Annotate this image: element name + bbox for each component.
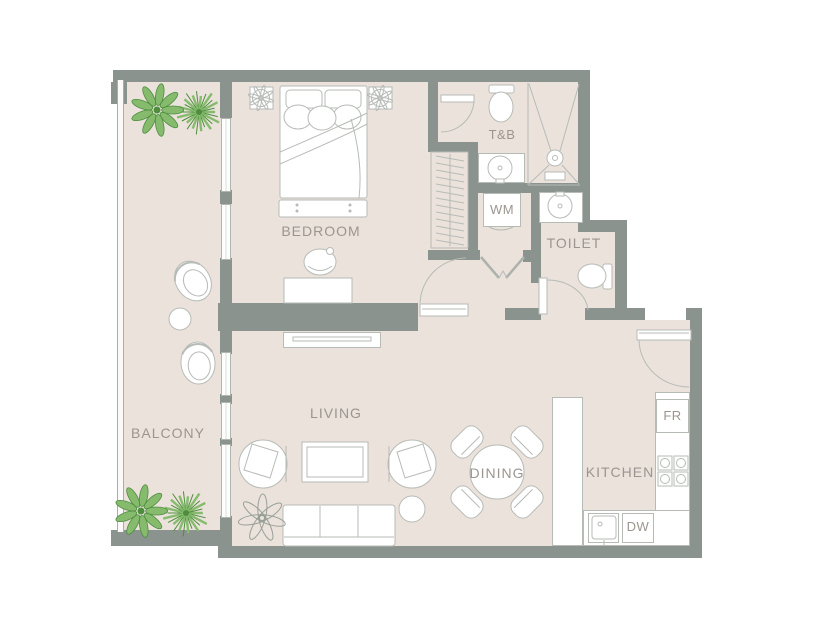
living-plant [238,494,287,542]
washing-machine-detail [489,227,513,230]
floor-plan: BALCONY BEDROOM LIVING DINING KITCHEN T&… [0,0,814,640]
shower [528,83,580,185]
kitchen-sink-detail [592,516,616,546]
palm-plant-top [177,91,219,134]
closet-bifold-right [506,257,524,278]
closet-bifold-left [481,257,499,278]
coffee-table [302,442,368,482]
balcony-lounge-chair-2 [179,341,217,386]
armchair-right [388,440,436,488]
leafy-plant-top [131,83,184,137]
balcony-lounge-chair-1 [167,254,219,308]
armchair-left [239,440,287,488]
nightstand-left [248,85,274,111]
dining-label: DINING [447,465,547,481]
leafy-plant-bottom [115,484,168,538]
fr-label: FR [656,408,689,423]
palm-plant-bottom [163,491,207,536]
tb-sink [488,156,512,183]
tv-screen [293,337,371,341]
tb-label: T&B [472,127,532,142]
living-side-table [399,496,425,522]
tb-door-arc [441,99,474,132]
entry-door-leaf [637,330,691,340]
bedroom-label: BEDROOM [271,223,371,239]
dw-label: DW [622,519,654,534]
entry-door-arc [639,340,689,387]
toilet-room-toilet-fixture [578,264,612,289]
bedroom-door-leaf [420,304,468,316]
kitchen-label: KITCHEN [570,464,670,480]
sofa [283,505,395,546]
tb-toilet-fixture [489,85,514,122]
living-label: LIVING [286,405,386,421]
tb-door-leaf [441,95,474,102]
toilet-label: TOILET [524,235,624,251]
wardrobe [431,152,468,248]
toilet-door-leaf [539,278,547,314]
balcony-table [169,308,191,330]
bedroom-door-arc [420,258,466,303]
wm-label: WM [483,202,521,217]
toilet-room-sink [548,192,572,218]
furniture-layer [0,0,814,640]
nightstand-right [367,85,393,111]
desk-and-chair [284,248,352,304]
bed [279,86,367,217]
balcony-label: BALCONY [118,425,218,441]
